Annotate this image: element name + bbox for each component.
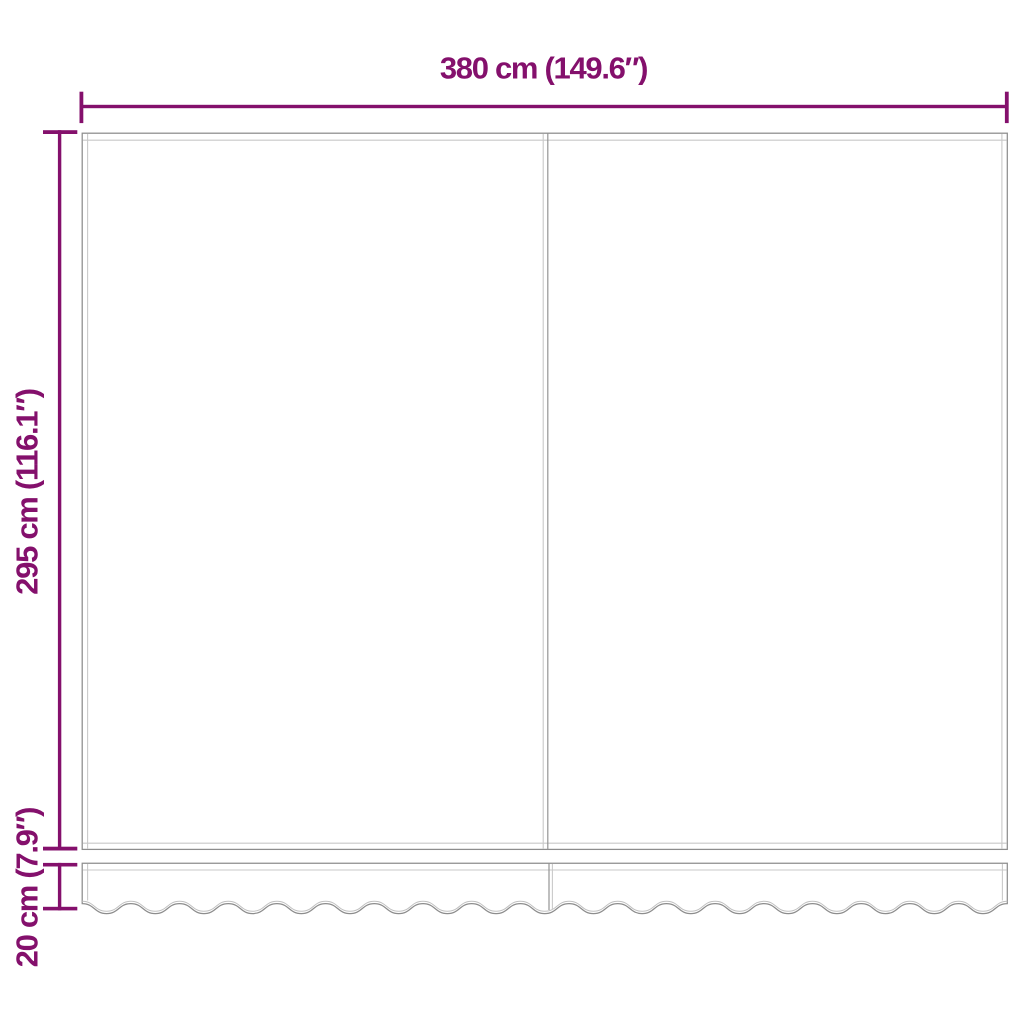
- svg-text:20 cm (7.9″): 20 cm (7.9″): [9, 808, 44, 968]
- svg-text:380 cm (149.6″): 380 cm (149.6″): [440, 51, 647, 86]
- svg-text:295 cm (116.1″): 295 cm (116.1″): [9, 389, 44, 595]
